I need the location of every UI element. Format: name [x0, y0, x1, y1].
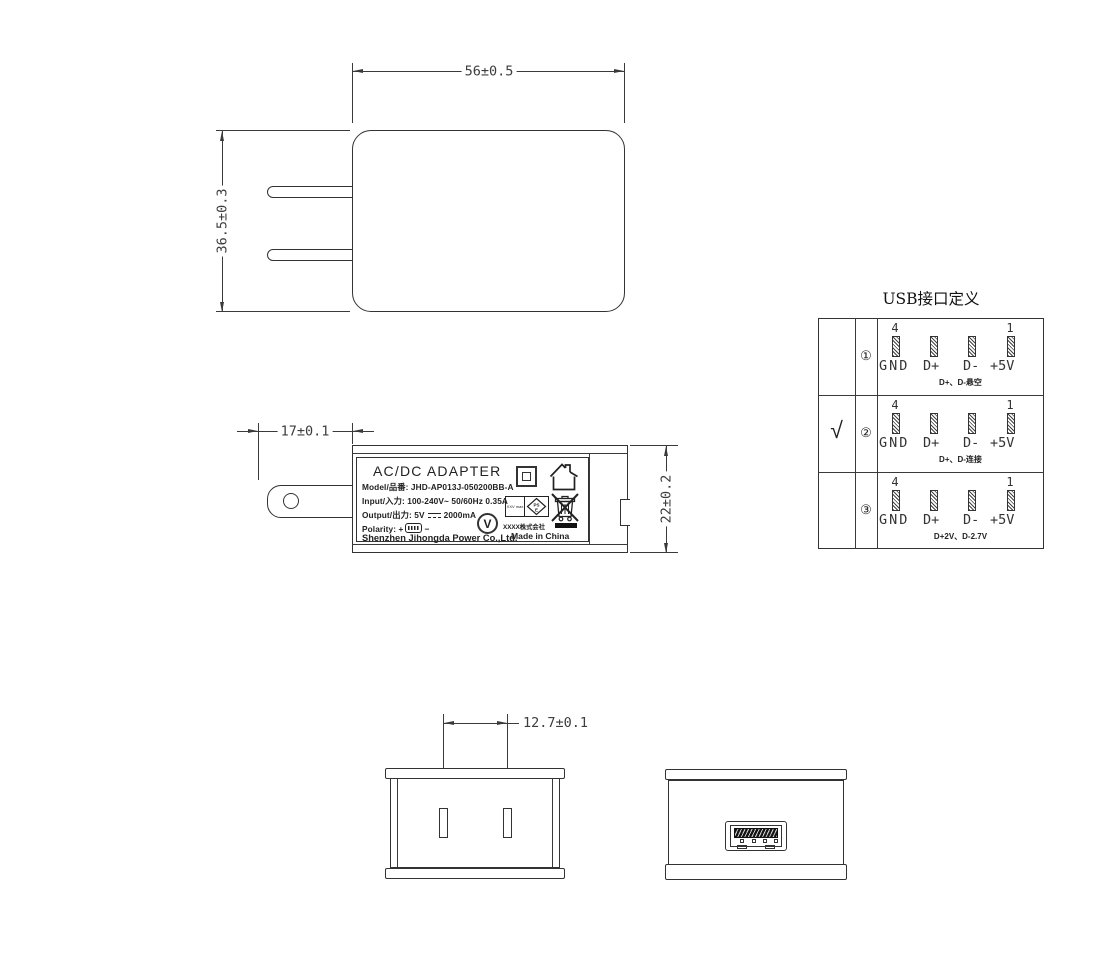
- usb-table-row: ① 4 1 GND D+ D- +5V D+、D-悬空: [818, 318, 1044, 395]
- row-index: ①: [855, 348, 877, 364]
- prong-slot-left: [439, 808, 448, 838]
- nameplate-model: Model/品番: JHD-AP013J-050200BB-A: [362, 481, 514, 493]
- pin-label-gnd: GND: [879, 435, 909, 451]
- pitch-dim-label: 12.7±0.1: [520, 716, 591, 731]
- pin-bar-dplus: [930, 336, 938, 357]
- adapter-front-body: [352, 130, 625, 312]
- pin-bar-gnd: [892, 490, 900, 511]
- side-body-divider: [589, 453, 590, 544]
- arrowhead-right-icon: [497, 721, 507, 725]
- pin-label-5v: +5V: [990, 358, 1014, 374]
- arrowhead-down-icon: [220, 302, 224, 312]
- pin-label-dplus: D+: [923, 435, 939, 451]
- pin-bar-gnd: [892, 336, 900, 357]
- side-prong-extension-right: [352, 423, 353, 444]
- top-view-inner-line-right: [552, 779, 553, 867]
- arrowhead-left-icon: [353, 69, 363, 73]
- nameplate-origin: Made in China: [511, 531, 569, 541]
- usb-contact-tab: [752, 839, 756, 843]
- top-view-body: [390, 778, 560, 868]
- usb-port-foot-left: [737, 845, 747, 849]
- pin-label-dminus: D-: [963, 435, 979, 451]
- usb-table-row: √ ② 4 1 GND D+ D- +5V D+、D-连接: [818, 395, 1044, 472]
- row-check: √: [818, 417, 855, 444]
- output-prefix: Output/出力: 5V: [362, 510, 425, 520]
- pin-bar-5v: [1007, 490, 1015, 511]
- arrowhead-right-icon: [248, 429, 258, 433]
- pin-label-gnd: GND: [879, 358, 909, 374]
- arrowhead-down-icon: [664, 543, 668, 553]
- pin-bar-gnd: [892, 413, 900, 434]
- front-height-dim-label: 36.5±0.3: [216, 185, 231, 256]
- pin-bar-5v: [1007, 336, 1015, 357]
- pin-bar-dminus: [968, 413, 976, 434]
- side-depth-extension-bottom: [630, 552, 678, 553]
- arrowhead-up-icon: [220, 131, 224, 141]
- usb-view-cap-upper: [665, 769, 847, 780]
- top-view-cap-lower: [385, 868, 565, 879]
- nameplate-title: AC/DC ADAPTER: [373, 463, 501, 479]
- row-index: ③: [855, 502, 877, 518]
- weee-bin-icon: [551, 492, 579, 523]
- pin-bar-dplus: [930, 413, 938, 434]
- top-view-inner-line-left: [397, 779, 398, 867]
- front-prong-top: [267, 186, 354, 198]
- arrowhead-left-icon: [444, 721, 454, 725]
- side-depth-extension-top: [630, 445, 678, 446]
- arrowhead-right-icon: [614, 69, 624, 73]
- row-note: D+、D-连接: [877, 454, 1044, 465]
- usb-port-tongue: [734, 828, 778, 838]
- row-note: D+2V、D-2.7V: [877, 531, 1044, 542]
- side-prong: [267, 485, 357, 518]
- pin-number-1: 1: [1003, 475, 1017, 489]
- usb-table-row: ③ 4 1 GND D+ D- +5V D+2V、D-2.7V: [818, 472, 1044, 549]
- weee-black-bar: [555, 523, 577, 528]
- pse-left-text: XXV max: [507, 504, 524, 509]
- pin-label-gnd: GND: [879, 512, 909, 528]
- pin-bar-5v: [1007, 413, 1015, 434]
- usb-contact-tab: [774, 839, 778, 843]
- pin-number-1: 1: [1003, 321, 1017, 335]
- front-height-extension-bottom: [216, 311, 350, 312]
- pin-number-1: 1: [1003, 398, 1017, 412]
- drawing-canvas: 56±0.5 36.5±0.3 17±0.1 AC/DC ADAPTER Mod…: [0, 0, 1100, 953]
- usb-contact-tab: [763, 839, 767, 843]
- pse-mark-icon: XXV max PS E: [505, 496, 549, 517]
- arrowhead-up-icon: [664, 446, 668, 456]
- front-prong-bottom: [267, 249, 354, 261]
- class2-inner-square: [522, 472, 531, 481]
- prong-slot-right: [503, 808, 512, 838]
- nameplate-output: Output/出力: 5V2000mA: [362, 509, 476, 521]
- row-note: D+、D-悬空: [877, 377, 1044, 388]
- nameplate-maker: XXXX株式会社: [503, 522, 545, 531]
- pin-label-dplus: D+: [923, 512, 939, 528]
- nameplate-company: Shenzhen Jihongda Power Co.,Ltd.: [362, 533, 517, 543]
- pin-label-5v: +5V: [990, 435, 1014, 451]
- front-width-dim-label: 56±0.5: [462, 65, 517, 80]
- side-prong-hole: [283, 493, 299, 509]
- pin-label-dminus: D-: [963, 512, 979, 528]
- pin-bar-dplus: [930, 490, 938, 511]
- pin-bar-dminus: [968, 490, 976, 511]
- pin-number-4: 4: [888, 475, 902, 489]
- side-usb-notch: [620, 499, 630, 526]
- usb-port-foot-right: [765, 845, 775, 849]
- class2-insulation-icon: [516, 466, 537, 487]
- pin-label-dplus: D+: [923, 358, 939, 374]
- side-body-bottom-seam: [352, 544, 628, 545]
- side-depth-dim-label: 22±0.2: [660, 472, 675, 527]
- pin-label-dminus: D-: [963, 358, 979, 374]
- side-prong-dim-label: 17±0.1: [278, 425, 333, 440]
- nameplate-input: Input/入力: 100-240V~ 50/60Hz 0.35A: [362, 495, 508, 507]
- usb-table-title: USB接口定义: [818, 287, 1044, 309]
- pin-number-4: 4: [888, 398, 902, 412]
- pin-label-5v: +5V: [990, 512, 1014, 528]
- arrowhead-left-icon: [353, 429, 363, 433]
- usb-polarity-icon: [405, 523, 422, 533]
- row-index: ②: [855, 425, 877, 441]
- pin-number-4: 4: [888, 321, 902, 335]
- efficiency-mark-letter: V: [483, 517, 491, 531]
- efficiency-mark-icon: V: [477, 513, 498, 534]
- pitch-dim-line: [443, 723, 519, 724]
- pin-bar-dminus: [968, 336, 976, 357]
- front-height-extension-top: [216, 130, 350, 131]
- side-body-top-seam: [352, 453, 628, 454]
- pse-line2: E: [535, 508, 538, 513]
- dc-symbol-icon: [428, 512, 441, 520]
- output-suffix: 2000mA: [444, 510, 476, 520]
- usb-contact-tab: [740, 839, 744, 843]
- indoor-use-house-icon: [549, 462, 579, 491]
- usb-view-cap-lower: [665, 864, 847, 880]
